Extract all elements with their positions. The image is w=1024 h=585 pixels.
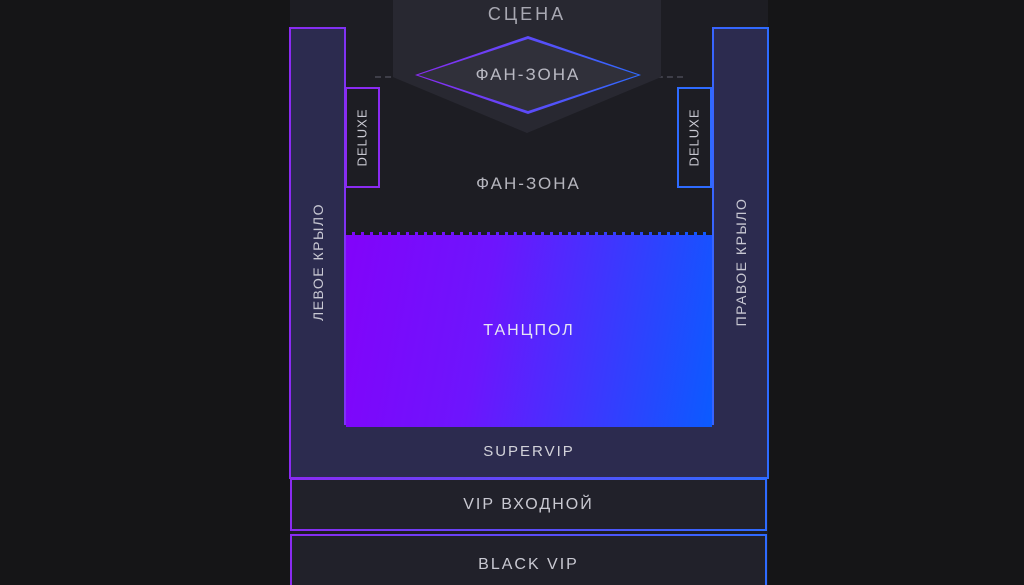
deluxe-left-label: DELUXE [355, 108, 370, 166]
deluxe-right-label: DELUXE [687, 108, 702, 166]
dancefloor-label: ТАНЦПОЛ [483, 322, 575, 340]
stage-label: СЦЕНА [393, 4, 661, 25]
vip-entrance-zone[interactable]: VIP ВХОДНОЙ [290, 478, 767, 531]
black-vip-label: BLACK VIP [478, 556, 579, 574]
deluxe-left-zone[interactable]: DELUXE [345, 87, 380, 188]
right-wing-label: ПРАВОЕ КРЫЛО [733, 198, 749, 327]
venue-map: СЦЕНА ФАН-ЗОНА DELUXE DELUXE ФАН-ЗОНА ТА… [0, 0, 1024, 585]
vip-entrance-label: VIP ВХОДНОЙ [463, 496, 593, 514]
vip-entrance-fill: VIP ВХОДНОЙ [292, 480, 765, 529]
dancefloor-zone[interactable]: ТАНЦПОЛ [346, 232, 712, 427]
fan-zone-area-label: ФАН-ЗОНА [345, 174, 712, 194]
left-wing-label: ЛЕВОЕ КРЫЛО [310, 203, 326, 321]
supervip-label: SUPERVIP [290, 443, 768, 460]
black-vip-zone[interactable]: BLACK VIP [290, 534, 767, 585]
fan-zone-diamond-label: ФАН-ЗОНА [476, 65, 581, 85]
black-vip-fill: BLACK VIP [292, 536, 765, 585]
deluxe-right-zone[interactable]: DELUXE [677, 87, 712, 188]
